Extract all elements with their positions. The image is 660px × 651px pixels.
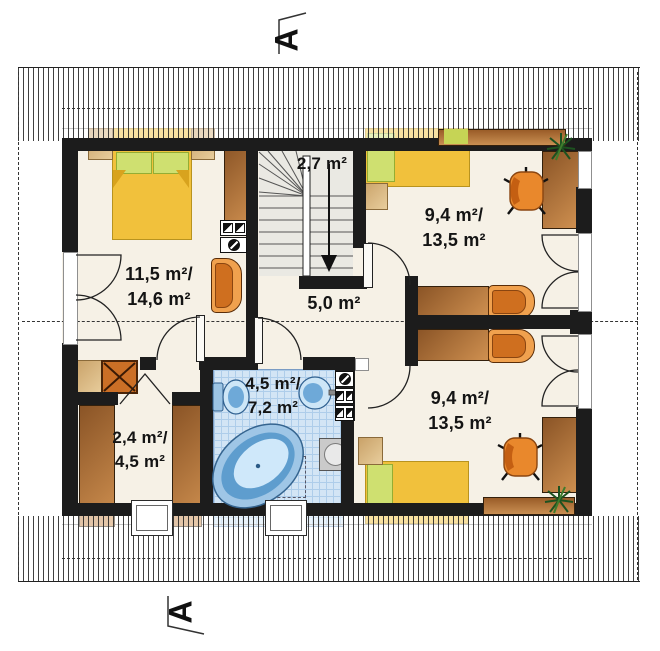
vent-shaft-icon (335, 405, 354, 421)
wall-bathroom-west (200, 369, 213, 503)
wall-gable-left-upper (62, 138, 78, 252)
roof-outline-left (18, 72, 19, 580)
armchair (211, 258, 242, 313)
area-value: 7,2 m² (232, 396, 314, 420)
room-label-closet: 2,4 m²/ 4,5 m² (100, 426, 180, 474)
wall-stair-south (299, 276, 367, 289)
section-marker-top: A (268, 13, 306, 54)
room-label-bedroom-left: 11,5 m²/ 14,6 m² (106, 262, 212, 312)
roof-hatch-bottom (18, 516, 640, 582)
roof-window (265, 500, 307, 536)
vent-shaft-icon (335, 388, 354, 404)
room-label-staircase: 2,7 m² (286, 152, 358, 176)
area-value: 13,5 m² (418, 411, 502, 436)
window-right-upper (578, 151, 592, 189)
bedside-table (358, 437, 383, 465)
door-sill-bottom-right (355, 358, 369, 371)
desk (542, 417, 579, 493)
area-value: 11,5 m²/ (106, 262, 212, 287)
chimney-flue-icon (220, 237, 247, 253)
low-headroom-dashed-outline (262, 456, 306, 498)
chair (488, 285, 535, 319)
desk (416, 329, 489, 361)
shelf (483, 497, 575, 515)
section-letter: A (268, 28, 304, 51)
area-value: 4,5 m²/ (232, 372, 314, 396)
shelf-accent (444, 129, 468, 144)
section-marker-bottom: A (162, 596, 204, 634)
room-label-bedroom-top-right: 9,4 m²/ 13,5 m² (412, 203, 496, 253)
room-label-bathroom: 4,5 m²/ 7,2 m² (232, 372, 314, 420)
roof-window (131, 500, 173, 536)
room-label-bedroom-bottom-right: 9,4 m²/ 13,5 m² (418, 386, 502, 436)
chimney-flue-icon (335, 371, 354, 387)
area-value: 14,6 m² (106, 287, 212, 312)
wall-south-corridor-1 (140, 357, 156, 370)
section-letter: A (162, 600, 198, 623)
pillow (153, 152, 189, 174)
desk (416, 286, 489, 318)
roof-dashed-top (62, 108, 592, 109)
chair (488, 329, 535, 363)
door-right-top (578, 233, 592, 312)
side-table (75, 360, 103, 394)
desk (542, 151, 579, 229)
area-value: 2,4 m²/ (100, 426, 180, 450)
area-value: 13,5 m² (412, 228, 496, 253)
window-left-gable (63, 252, 78, 345)
area-value: 4,5 m² (100, 450, 180, 474)
folding-table (101, 360, 138, 394)
pillow (116, 152, 152, 174)
wall-gable-right-seg1 (576, 187, 592, 233)
wall-closet-north-1 (66, 392, 118, 405)
roof-dashed-bottom (62, 558, 592, 559)
door-leaf-bedroom-top-right (363, 243, 373, 288)
vent-shaft-icon (220, 220, 247, 236)
wall-closet-north-2 (172, 392, 200, 405)
wall-bathroom-east-thin (341, 421, 354, 516)
roof-outline-right (637, 72, 638, 580)
wall-gable-left-lower (62, 343, 78, 516)
door-leaf-bedroom-left (196, 315, 205, 362)
wall-room-divider (414, 315, 572, 329)
door-right-bottom (578, 334, 592, 409)
area-value: 9,4 m²/ (418, 386, 502, 411)
floor-plan: 11,5 m²/ 14,6 m² 2,7 m² 9,4 m²/ 13,5 m² … (0, 0, 660, 651)
area-value: 9,4 m²/ (412, 203, 496, 228)
wall-gable-right-seg2 (576, 407, 592, 503)
wall-gable-right-junction (570, 310, 592, 334)
room-label-hallway: 5,0 m² (296, 291, 372, 316)
door-leaf-bathroom (254, 317, 263, 364)
